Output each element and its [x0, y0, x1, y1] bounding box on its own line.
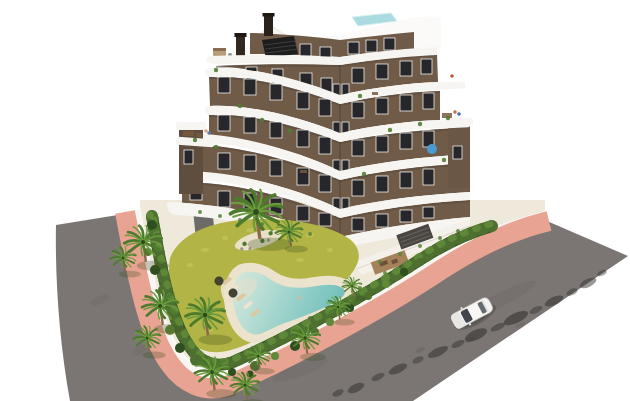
lawn-speckle	[187, 263, 193, 267]
person	[207, 131, 211, 135]
parasol	[215, 277, 223, 285]
balcony-plant	[238, 104, 242, 108]
window	[376, 136, 388, 152]
furniture	[300, 170, 307, 173]
person	[453, 110, 457, 114]
window	[300, 44, 311, 56]
window	[244, 155, 256, 171]
window	[297, 130, 309, 147]
lawn-speckle	[246, 228, 254, 232]
window	[384, 38, 395, 50]
palm-shadow	[300, 353, 326, 361]
window	[319, 137, 331, 154]
window	[376, 176, 388, 192]
balcony-plant	[193, 138, 197, 142]
bush	[147, 212, 154, 219]
window	[297, 206, 309, 221]
palm-shadow	[137, 261, 170, 271]
person	[450, 74, 454, 78]
left-tower-cap	[176, 122, 206, 130]
roof-sofa	[213, 51, 226, 56]
window	[400, 172, 412, 188]
window	[376, 64, 388, 79]
bush	[382, 280, 390, 288]
palm-shadow	[334, 319, 355, 325]
window	[270, 122, 282, 138]
right-tower-window	[453, 146, 462, 159]
balcony-plant	[388, 128, 392, 132]
shrub	[398, 252, 402, 256]
shrub	[198, 210, 202, 214]
shrub	[308, 232, 312, 236]
chimney-1-cap	[235, 33, 247, 37]
lawn-speckle	[222, 236, 228, 240]
balcony-plant	[362, 172, 366, 176]
roof-sofa-back	[213, 48, 226, 51]
bush	[271, 352, 279, 360]
person	[457, 112, 461, 116]
balcony-plant	[288, 129, 292, 133]
left-tower-window	[184, 150, 193, 164]
palm-shadow	[199, 335, 233, 345]
window	[352, 68, 364, 83]
palm-shadow	[349, 296, 366, 301]
furniture	[183, 131, 194, 136]
window	[400, 133, 412, 149]
window	[423, 169, 434, 185]
furniture	[280, 106, 286, 109]
person	[204, 129, 208, 133]
balcony-plant	[358, 94, 362, 98]
window	[319, 99, 331, 116]
window	[423, 93, 434, 109]
window	[218, 77, 230, 93]
shrub	[378, 260, 382, 264]
window	[270, 84, 282, 100]
furniture	[372, 92, 378, 95]
palm-shadow	[206, 389, 236, 398]
window	[244, 79, 256, 95]
render-scene	[0, 0, 630, 401]
window	[421, 59, 432, 74]
balcony-plant	[214, 145, 218, 149]
bush	[175, 343, 185, 353]
window	[244, 117, 256, 133]
window	[400, 61, 412, 76]
window	[218, 153, 230, 169]
bush	[326, 318, 334, 326]
swimmer	[299, 297, 302, 300]
balcony-plant	[214, 68, 218, 72]
balcony-plant	[260, 118, 264, 122]
blue-parasol	[427, 144, 437, 154]
shrub	[218, 214, 222, 218]
window	[319, 175, 331, 192]
lawn-speckle	[296, 258, 304, 262]
window	[218, 115, 230, 131]
palm-shadow	[154, 324, 185, 334]
window	[270, 160, 282, 176]
window	[400, 95, 412, 111]
window	[352, 102, 364, 118]
window	[352, 218, 364, 231]
balcony-plant	[446, 116, 450, 120]
window	[348, 42, 359, 54]
window	[319, 213, 331, 226]
lawn-speckle	[327, 248, 333, 252]
window	[400, 210, 412, 222]
palm-shadow	[248, 238, 292, 252]
parasol	[229, 289, 237, 297]
palm-shadow	[254, 368, 275, 374]
chimney-2-cap	[263, 13, 275, 17]
window	[218, 191, 230, 207]
window	[297, 92, 309, 109]
lawn-speckle	[201, 248, 209, 252]
balcony-plant	[418, 122, 422, 126]
palm-shadow	[143, 352, 166, 359]
window	[376, 214, 388, 227]
furniture	[254, 96, 260, 99]
window	[352, 180, 364, 196]
upper-right-terrace	[437, 82, 465, 90]
palm-shadow	[119, 271, 141, 278]
bush	[416, 258, 424, 266]
furniture	[368, 100, 375, 103]
shrub	[418, 244, 422, 248]
window	[366, 40, 377, 52]
window	[376, 98, 388, 114]
window	[352, 140, 364, 156]
bush	[400, 268, 408, 276]
balcony-plant	[442, 158, 446, 162]
chimney-2	[264, 15, 273, 36]
window	[423, 207, 434, 218]
furniture	[196, 133, 202, 137]
shrub	[438, 236, 442, 240]
